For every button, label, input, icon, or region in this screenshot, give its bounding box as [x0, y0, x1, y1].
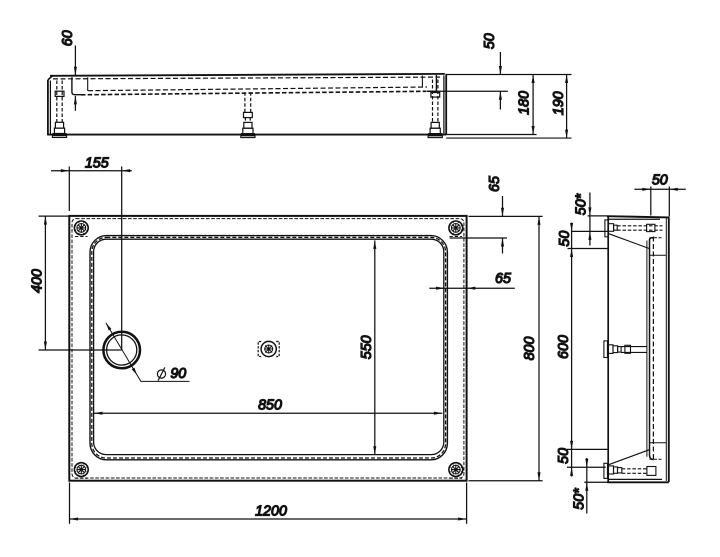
svg-text:550: 550: [359, 335, 375, 359]
svg-text:155: 155: [85, 156, 109, 172]
svg-text:50: 50: [557, 231, 573, 247]
svg-text:65: 65: [495, 271, 511, 287]
svg-text:50: 50: [482, 33, 498, 49]
svg-text:190: 190: [551, 91, 567, 115]
svg-text:180: 180: [517, 91, 533, 115]
svg-text:50*: 50*: [571, 488, 587, 510]
svg-text:65: 65: [487, 176, 503, 192]
svg-text:850: 850: [258, 398, 282, 414]
svg-text:90: 90: [170, 366, 186, 382]
svg-text:60: 60: [60, 30, 76, 46]
svg-text:50: 50: [652, 173, 668, 189]
svg-text:1200: 1200: [255, 504, 287, 520]
svg-text:50: 50: [556, 448, 572, 464]
svg-text:400: 400: [29, 269, 45, 293]
svg-text:50*: 50*: [574, 193, 590, 215]
svg-text:800: 800: [522, 337, 538, 361]
svg-text:600: 600: [556, 335, 572, 359]
